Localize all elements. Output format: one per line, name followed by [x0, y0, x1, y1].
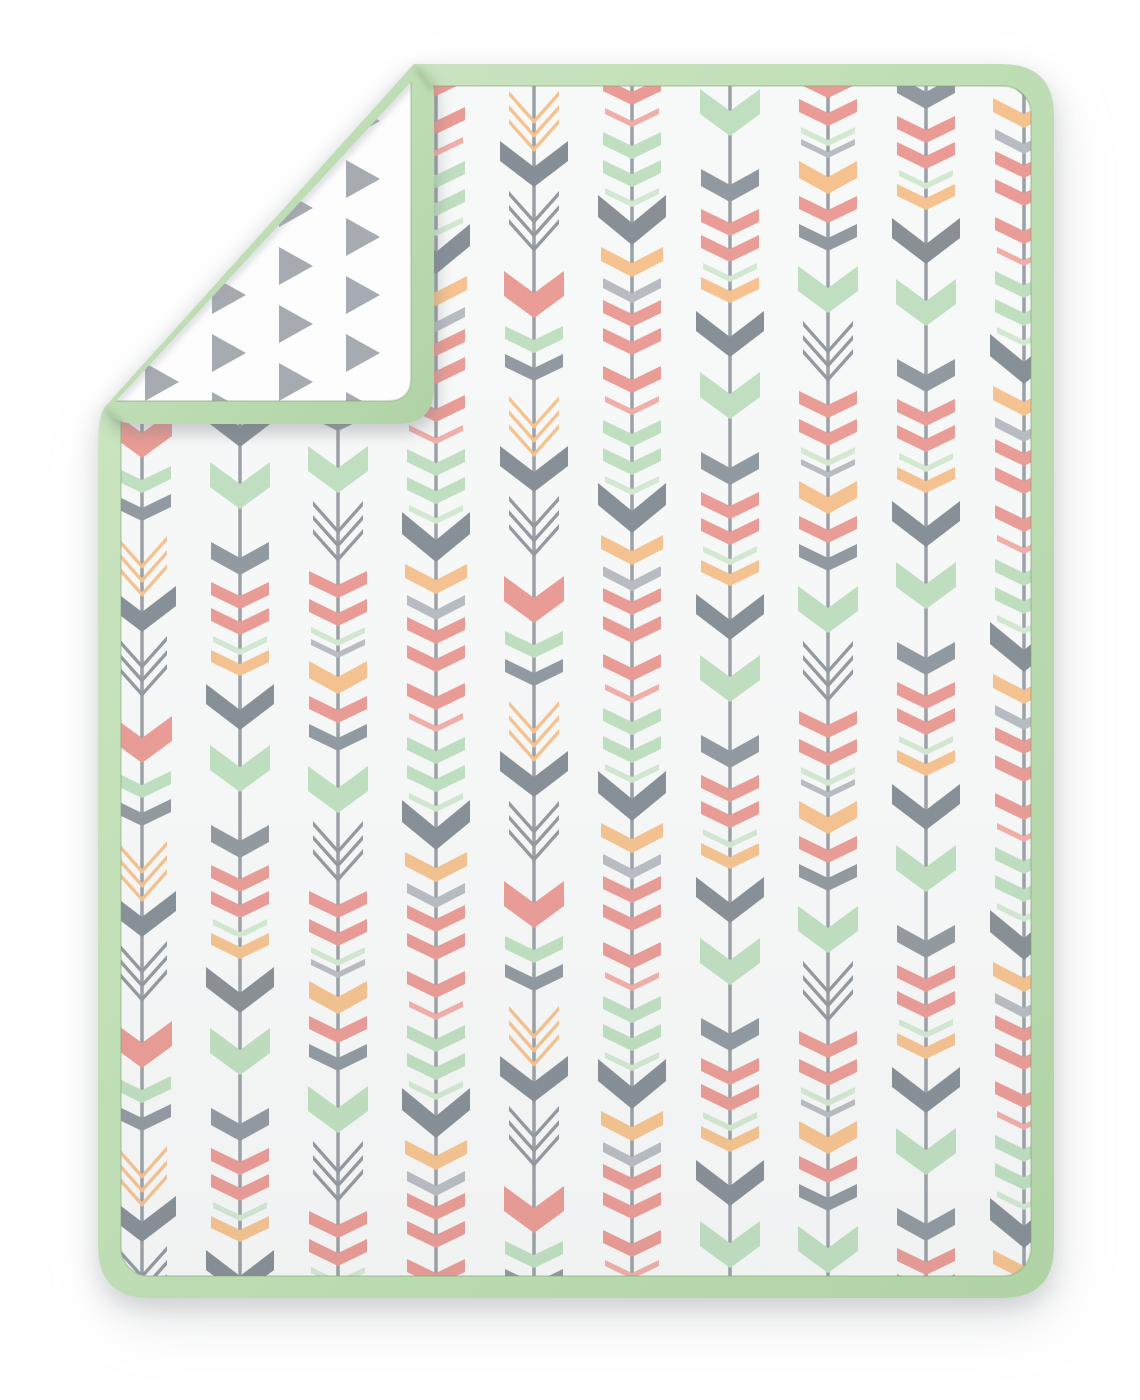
- back-triangle: [212, 218, 246, 256]
- back-triangle: [78, 160, 112, 198]
- back-triangle: [346, 44, 380, 82]
- back-triangle: [279, 73, 313, 111]
- product-photo: [0, 0, 1140, 1400]
- page-background: [0, 0, 1140, 1400]
- back-triangle: [78, 44, 112, 82]
- blanket: [78, 0, 1058, 1314]
- back-triangle: [78, 334, 112, 372]
- back-triangle: [212, 160, 246, 198]
- back-triangle: [78, 218, 112, 256]
- back-triangle: [279, 131, 313, 169]
- back-triangle: [145, 131, 179, 169]
- blanket-body: [98, 0, 1058, 1314]
- back-triangle: [145, 189, 179, 227]
- folded-corner: [78, 44, 447, 459]
- back-triangle: [212, 102, 246, 140]
- back-triangle: [212, 44, 246, 82]
- back-triangle: [78, 102, 112, 140]
- back-triangle: [78, 276, 112, 314]
- back-triangle: [145, 247, 179, 285]
- back-triangle: [145, 73, 179, 111]
